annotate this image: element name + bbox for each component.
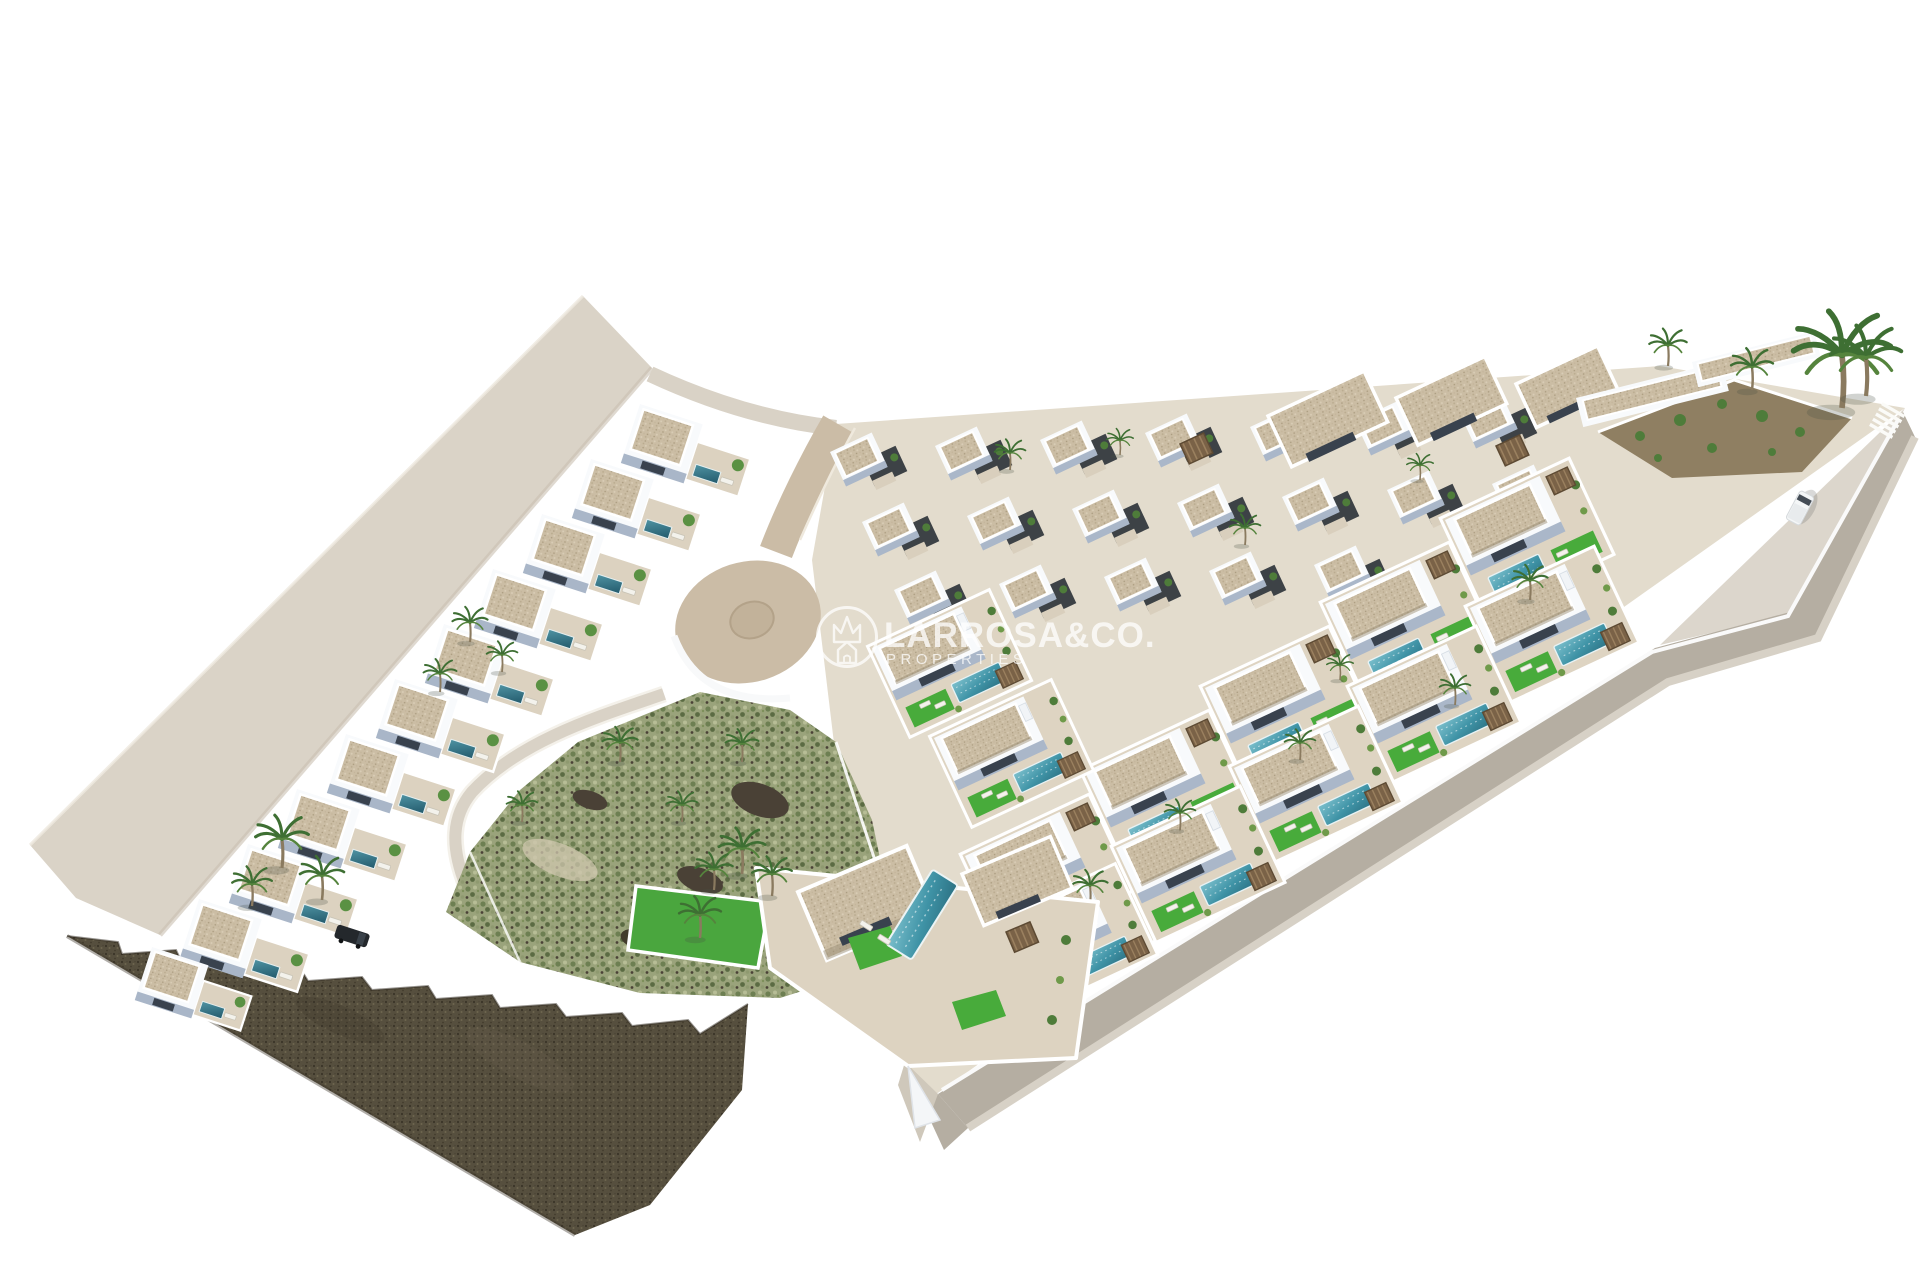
aerial-render-image: LARROSA&CO. PROPERTIES <box>0 0 1920 1280</box>
render-canvas: LARROSA&CO. PROPERTIES <box>0 0 1920 1280</box>
brand-name: LARROSA&CO. <box>884 616 1156 655</box>
brand-tagline: PROPERTIES <box>886 651 1027 668</box>
